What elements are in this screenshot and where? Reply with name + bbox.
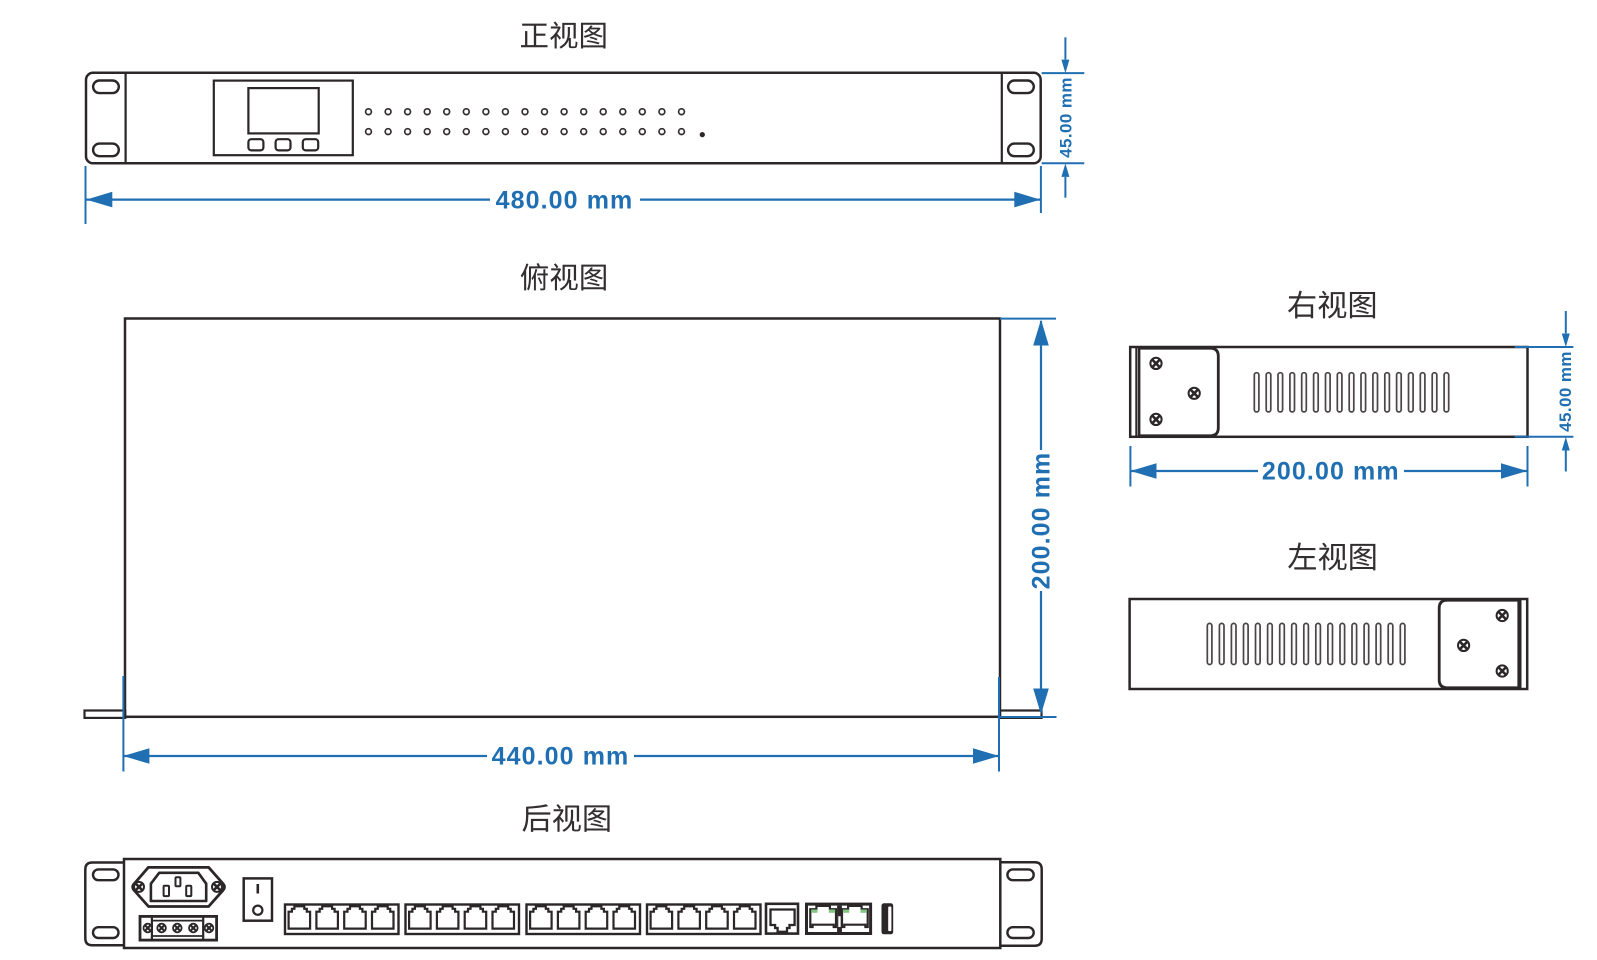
svg-text:45.00 mm: 45.00 mm [1057, 77, 1076, 158]
svg-text:200.00 mm: 200.00 mm [1262, 458, 1400, 486]
svg-text:200.00 mm: 200.00 mm [1028, 452, 1056, 590]
svg-text:480.00 mm: 480.00 mm [496, 187, 634, 215]
svg-text:45.00 mm: 45.00 mm [1556, 351, 1575, 432]
svg-text:440.00 mm: 440.00 mm [492, 743, 630, 771]
